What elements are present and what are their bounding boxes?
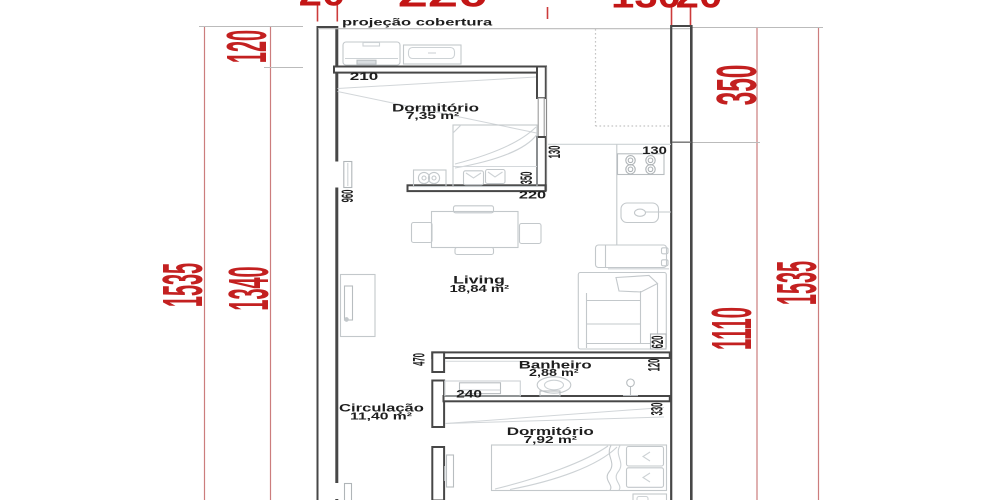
svg-text:240: 240 (456, 388, 482, 400)
svg-text:7,92 m²: 7,92 m² (524, 434, 578, 446)
svg-text:20: 20 (299, 0, 346, 14)
svg-text:330: 330 (647, 403, 666, 416)
svg-text:7,35 m²: 7,35 m² (406, 110, 460, 122)
svg-text:620: 620 (648, 336, 667, 349)
svg-text:1110: 1110 (700, 307, 764, 350)
svg-text:130: 130 (642, 144, 667, 157)
svg-text:1340: 1340 (219, 266, 282, 310)
svg-text:20: 20 (676, 0, 723, 16)
svg-text:470: 470 (409, 353, 428, 366)
svg-text:220: 220 (519, 188, 547, 201)
svg-text:120: 120 (217, 30, 280, 63)
svg-text:350: 350 (705, 65, 769, 106)
svg-text:350: 350 (517, 172, 536, 185)
svg-text:960: 960 (338, 190, 357, 203)
svg-text:18,84 m²: 18,84 m² (450, 283, 510, 294)
svg-text:130: 130 (611, 0, 681, 16)
svg-text:210: 210 (350, 71, 378, 83)
svg-text:2,88 m²: 2,88 m² (529, 367, 579, 378)
svg-text:11,40 m²: 11,40 m² (350, 410, 413, 421)
svg-text:220: 220 (398, 0, 489, 14)
svg-text:1535: 1535 (153, 263, 216, 307)
svg-text:projeção cobertura: projeção cobertura (342, 16, 493, 28)
svg-text:120: 120 (644, 359, 663, 372)
svg-text:1535: 1535 (767, 261, 830, 305)
svg-text:130: 130 (545, 146, 564, 159)
